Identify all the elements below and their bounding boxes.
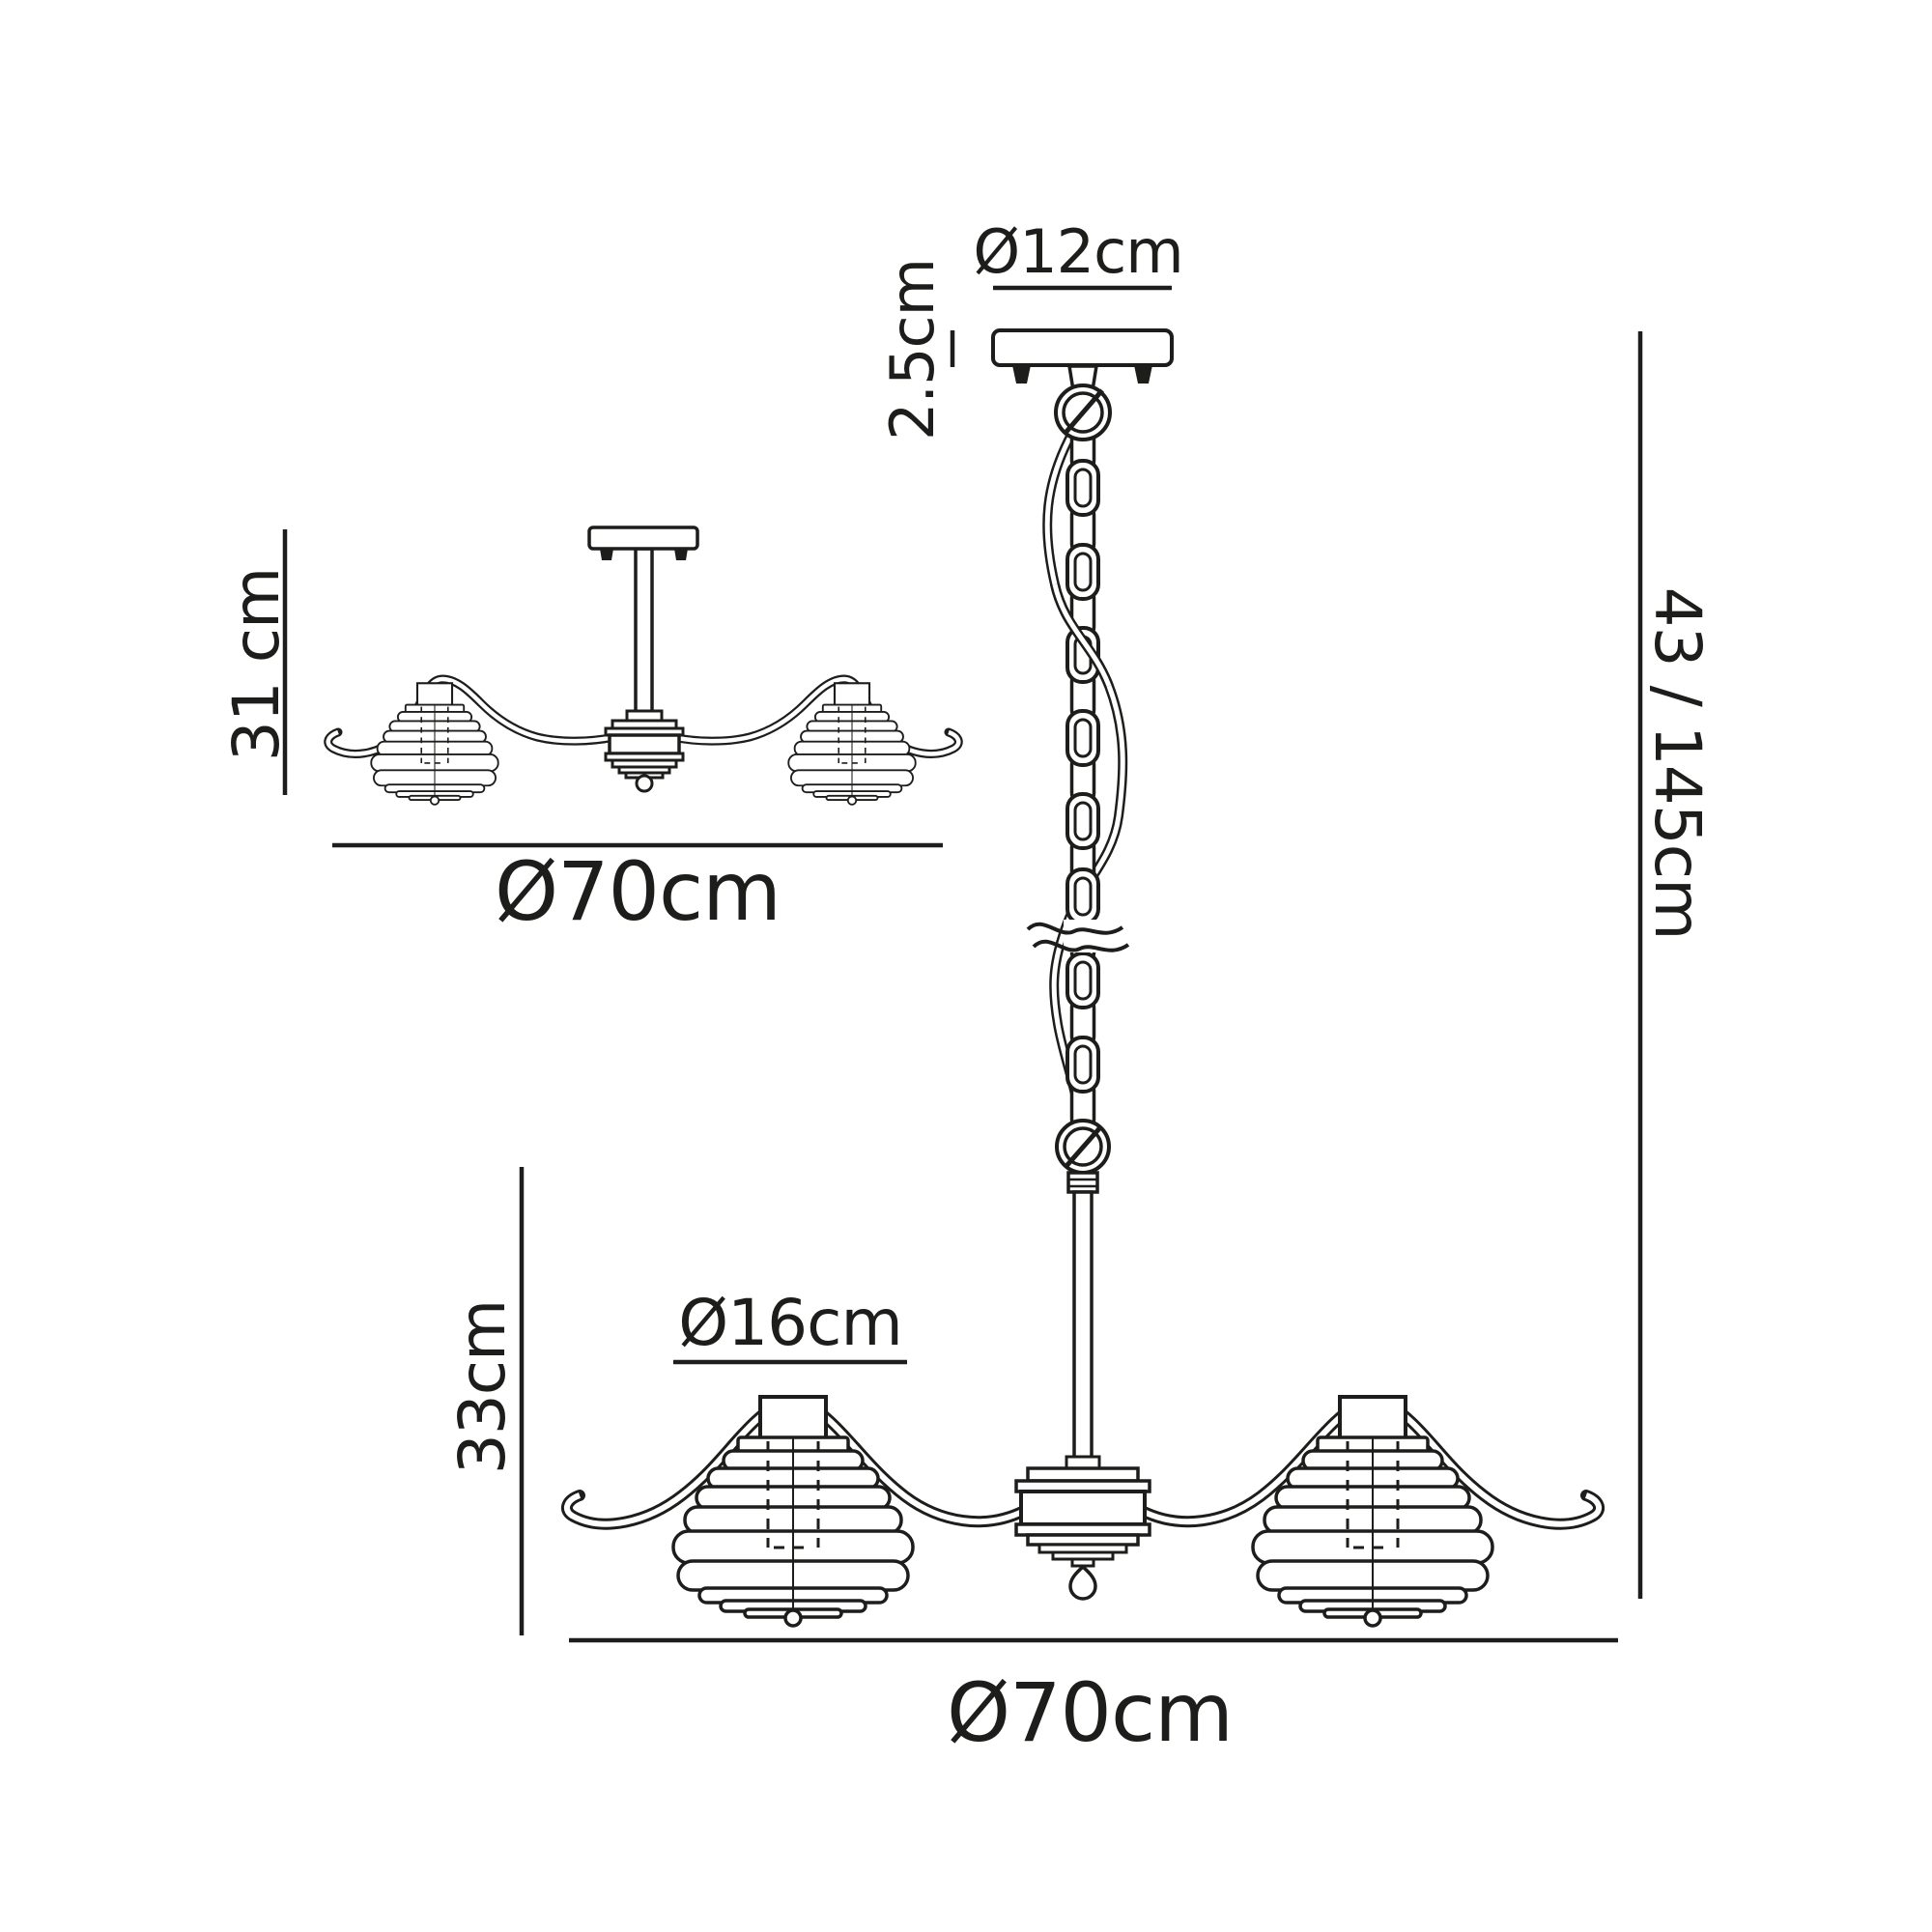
drop-rod bbox=[1066, 1173, 1099, 1468]
suspension-chain bbox=[1067, 421, 1098, 1130]
semiflush-center-hub bbox=[606, 711, 683, 791]
overall-height-label: 43 / 145cm bbox=[1640, 587, 1715, 940]
semiflush-down-rod bbox=[636, 549, 652, 713]
pendant-right-shade bbox=[1253, 1397, 1492, 1626]
semiflush-width-label: Ø70cm bbox=[495, 844, 781, 939]
canopy-diameter-label: Ø12cm bbox=[973, 216, 1182, 287]
lower-hanging-ring bbox=[1057, 1121, 1109, 1173]
fixture-height-label: 33cm bbox=[445, 1300, 520, 1475]
upper-hanging-ring bbox=[1056, 385, 1110, 440]
canopy-height-label: 2.5cm bbox=[877, 259, 948, 440]
fixture-width-label: Ø70cm bbox=[947, 1665, 1233, 1760]
chain-break-symbol bbox=[1028, 920, 1128, 952]
shade-diameter-label: Ø16cm bbox=[678, 1286, 902, 1360]
pendant-left-shade bbox=[673, 1397, 913, 1626]
semiflush-height-label: 31 cm bbox=[219, 568, 294, 762]
dimension-diagram: 31 cm Ø70cm bbox=[0, 0, 1932, 1932]
pendant-canopy bbox=[993, 330, 1172, 390]
pendant-center-hub bbox=[1016, 1468, 1150, 1599]
technical-drawing-page: 31 cm Ø70cm bbox=[0, 0, 1932, 1932]
semi-flush-view: 31 cm Ø70cm bbox=[219, 527, 958, 939]
pendant-view: Ø12cm 2.5cm 43 / 145cm Ø16cm 33cm Ø70cm bbox=[445, 216, 1715, 1760]
